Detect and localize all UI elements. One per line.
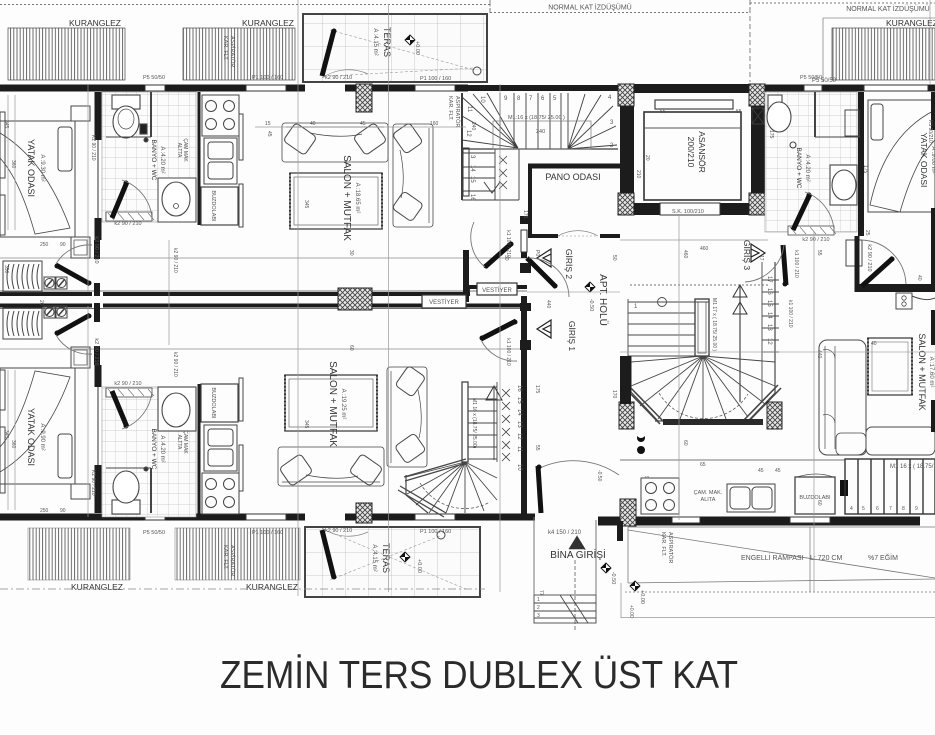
svg-text:A :9.90 m²: A :9.90 m² [39,423,45,450]
svg-text:k1 100 / 210: k1 100 / 210 [787,300,793,328]
svg-text:16: 16 [766,288,772,295]
svg-text:KAR. FLT.: KAR. FLT. [447,96,453,121]
svg-text:PANO ODASI: PANO ODASI [545,172,600,182]
svg-text:NORMAL KAT İZDÜŞÜMÜ: NORMAL KAT İZDÜŞÜMÜ [846,4,930,13]
svg-text:55: 55 [534,445,540,451]
svg-text:40: 40 [916,275,922,281]
svg-text:15: 15 [766,300,772,307]
svg-text:17: 17 [766,276,772,283]
svg-text:77: 77 [538,590,544,596]
svg-text:k1 100 / 210: k1 100 / 210 [505,230,511,258]
svg-text:240: 240 [536,129,545,135]
svg-text:K2 90 / 210: K2 90 / 210 [90,135,96,161]
svg-text:160: 160 [430,121,439,127]
svg-text:BUZDOLABI: BUZDOLABI [210,190,216,222]
svg-text:+0.00: +0.00 [416,559,422,573]
svg-text:360: 360 [10,440,16,449]
svg-text:ASANSÖR: ASANSÖR [697,131,707,173]
svg-text:15: 15 [469,176,475,183]
svg-text:+0.00: +0.00 [628,605,634,618]
svg-text:6: 6 [876,506,879,512]
svg-text:60: 60 [816,500,822,506]
svg-text:14: 14 [516,409,522,416]
svg-text:15: 15 [265,121,271,127]
svg-text:40: 40 [310,121,316,127]
svg-text:A :4.15 m²: A :4.15 m² [372,28,378,55]
svg-text:M1 16 x (18.75/ 25.00): M1 16 x (18.75/ 25.00) [471,398,477,449]
svg-text:170: 170 [611,390,617,399]
svg-text:TERAS: TERAS [381,543,391,573]
svg-text:P5 50/50: P5 50/50 [800,75,822,81]
svg-text:ALTTA: ALTTA [176,435,182,450]
svg-text:K2 90 / 210: K2 90 / 210 [90,470,96,496]
svg-text:K3 90/210: K3 90/210 [927,120,933,143]
svg-text:SALON + MUTFAK: SALON + MUTFAK [917,333,927,410]
svg-text:k2 90 / 210: k2 90 / 210 [866,244,872,271]
svg-text:30: 30 [348,250,354,256]
svg-text:M1 17 x ( 18.75/ 25.00 ): M1 17 x ( 18.75/ 25.00 ) [711,298,717,351]
svg-text:k2 90 / 210: k2 90 / 210 [93,338,99,365]
svg-text:k1 100 / 210: k1 100 / 210 [505,338,511,366]
svg-text:ASPİRATÖR: ASPİRATÖR [229,36,236,67]
svg-text:14: 14 [766,312,772,319]
svg-text:13: 13 [766,324,772,331]
svg-text:L: 720 CM: L: 720 CM [810,555,842,562]
svg-text:%7 EĞİM: %7 EĞİM [868,553,898,562]
svg-text:45: 45 [266,131,272,137]
svg-text:P1 100 / 160: P1 100 / 160 [420,76,451,82]
svg-text:30: 30 [503,255,509,261]
svg-text:BUZDOLABI: BUZDOLABI [210,387,216,419]
svg-text:M1:16 x (18.75/ 25.00 ): M1:16 x (18.75/ 25.00 ) [508,115,565,121]
svg-text:60: 60 [682,440,688,446]
svg-text:8: 8 [902,506,905,512]
svg-text:BANYO + WC: BANYO + WC [150,429,157,470]
svg-text:ALTTA: ALTTA [176,143,182,158]
svg-text:14: 14 [469,165,475,172]
svg-text:ALITA: ALITA [701,497,716,503]
svg-text:45: 45 [360,121,366,127]
svg-text:-0.50: -0.50 [610,572,616,585]
svg-text:k2 90 / 210: k2 90 / 210 [325,75,352,81]
svg-text:P1 100 / 160: P1 100 / 160 [252,530,283,536]
svg-text:360: 360 [10,160,16,169]
svg-text:KAR. FLT.: KAR. FLT. [222,36,228,61]
svg-text:10: 10 [479,96,485,103]
svg-text:11: 11 [466,106,472,113]
svg-text:M1 16 x ( 18.75/ 25.03 ): M1 16 x ( 18.75/ 25.03 ) [890,464,935,470]
svg-text:11: 11 [516,446,522,453]
svg-text:440: 440 [816,350,822,359]
svg-text:k2 90 / 210: k2 90 / 210 [172,352,178,377]
svg-text:350: 350 [3,265,9,274]
svg-text:12: 12 [516,433,522,440]
svg-text:SALON + MUTFAK: SALON + MUTFAK [341,155,352,241]
svg-text:A :4.20 m²: A :4.20 m² [159,146,165,173]
svg-text:12: 12 [465,130,471,137]
svg-text:A :4.20 m²: A :4.20 m² [804,154,810,181]
svg-text:A :4.15 m²: A :4.15 m² [371,544,377,571]
svg-text:BİNA GİRİŞİ: BİNA GİRİŞİ [550,548,606,561]
svg-text:345: 345 [303,420,309,429]
svg-text:45: 45 [775,468,781,474]
svg-text:ÇAM MAK: ÇAM MAK [182,138,188,162]
svg-text:440: 440 [545,300,551,309]
svg-text:3: 3 [537,613,540,619]
svg-text:VESTİYER: VESTİYER [482,287,512,294]
svg-text:55: 55 [736,109,742,115]
svg-text:2: 2 [537,605,540,611]
svg-text:90: 90 [60,508,66,514]
svg-text:APT. HOLÜ: APT. HOLÜ [597,274,609,326]
svg-text:10: 10 [516,464,522,471]
svg-text:-0.50: -0.50 [588,299,594,312]
svg-text:BANYO + WC: BANYO + WC [795,148,802,189]
svg-text:VESTİYER: VESTİYER [429,299,459,306]
svg-text:A :19.25 m²: A :19.25 m² [340,389,346,420]
svg-text:A :17.60 m²: A :17.60 m² [928,357,934,388]
svg-text:9: 9 [915,506,918,512]
svg-text:KURANGLEZ: KURANGLEZ [71,582,123,592]
svg-text:345: 345 [3,120,9,129]
svg-text:YATAK ODASI: YATAK ODASI [26,139,36,197]
svg-text:90: 90 [60,242,66,248]
svg-text:345: 345 [303,200,309,209]
svg-text:60: 60 [348,345,354,351]
svg-text:1: 1 [537,597,540,603]
svg-text:50: 50 [611,255,617,261]
svg-text:240: 240 [470,122,476,131]
svg-text:55: 55 [660,109,666,115]
svg-text:16: 16 [469,194,475,201]
svg-text:GİRİŞ 1: GİRİŞ 1 [567,321,577,352]
svg-text:A :18.65 m²: A :18.65 m² [354,183,360,214]
svg-text:GİRİŞ 3: GİRİŞ 3 [742,240,752,271]
svg-text:A :4.20 m²: A :4.20 m² [159,435,165,462]
svg-text:65: 65 [700,462,706,468]
svg-text:175: 175 [862,165,868,174]
svg-text:GİRİŞ 2: GİRİŞ 2 [564,249,574,280]
svg-text:17: 17 [758,255,764,261]
svg-text:A :9.30 m²: A :9.30 m² [39,154,45,181]
svg-text:ASPİRATÖR: ASPİRATÖR [454,96,461,127]
svg-text:BUZDOLABI: BUZDOLABI [799,495,831,501]
svg-text:S.K. 100/210: S.K. 100/210 [672,209,704,215]
svg-text:ÇAM. MAK.: ÇAM. MAK. [694,490,723,496]
svg-text:P1 100 / 160: P1 100 / 160 [420,529,451,535]
svg-text:k1 100 / 210: k1 100 / 210 [793,250,799,278]
svg-text:12: 12 [766,338,772,345]
svg-text:k2 90 / 210: k2 90 / 210 [114,381,141,387]
svg-text:KURANGLEZ: KURANGLEZ [886,18,935,28]
svg-text:k2 90 / 210: k2 90 / 210 [325,528,352,534]
svg-text:175: 175 [522,210,528,219]
svg-text:A :9.00 m²: A :9.00 m² [930,146,935,173]
svg-text:P0: P0 [534,250,540,256]
svg-text:200/210: 200/210 [686,137,696,168]
svg-text:k2 90 / 210: k2 90 / 210 [172,248,178,273]
svg-text:460: 460 [700,246,709,252]
svg-text:45: 45 [758,468,764,474]
svg-text:ASPİRATÖR: ASPİRATÖR [229,545,236,576]
svg-text:KAR. FLT.: KAR. FLT. [660,532,666,557]
svg-text:k2 90 / 210: k2 90 / 210 [93,236,99,263]
svg-text:460: 460 [682,250,688,259]
svg-text:20: 20 [644,155,650,161]
svg-text:YATAK ODASI: YATAK ODASI [26,408,36,466]
svg-text:+0.00: +0.00 [414,41,420,55]
svg-text:250: 250 [40,242,49,248]
svg-text:SALON + MUTFAK: SALON + MUTFAK [327,361,338,447]
svg-text:210: 210 [635,170,641,179]
svg-text:40: 40 [871,341,877,347]
svg-text:175: 175 [534,385,540,394]
svg-text:20: 20 [38,300,44,306]
svg-text:5: 5 [862,506,865,512]
svg-text:25: 25 [864,230,870,236]
svg-text:P5 50/50: P5 50/50 [143,530,165,536]
svg-text:345: 345 [3,430,9,439]
svg-text:ENGELLİ RAMPASI: ENGELLİ RAMPASI [741,553,804,562]
svg-text:175: 175 [768,130,774,139]
svg-text:9: 9 [643,476,649,479]
svg-text:BANYO + WC: BANYO + WC [150,140,157,181]
svg-text:55: 55 [816,250,822,256]
svg-text:250: 250 [40,508,49,514]
svg-text:KURANGLEZ: KURANGLEZ [246,582,298,592]
svg-text:KAR. FLT.: KAR. FLT. [222,545,228,570]
svg-text:13: 13 [516,421,522,428]
svg-text:4: 4 [850,506,853,512]
svg-text:TERAS: TERAS [382,27,392,57]
svg-text:15: 15 [516,397,522,404]
svg-text:KURANGLEZ: KURANGLEZ [242,18,294,28]
svg-text:ZEMİN TERS DUBLEX ÜST KAT: ZEMİN TERS DUBLEX ÜST KAT [220,654,738,697]
svg-text:+0.00: +0.00 [639,590,645,604]
svg-text:P5 50/50: P5 50/50 [143,75,165,81]
svg-text:NORMAL KAT İZDÜŞÜMÜ: NORMAL KAT İZDÜŞÜMÜ [548,3,632,12]
svg-text:7: 7 [889,506,892,512]
svg-text:ASPİRATÖR: ASPİRATÖR [667,532,674,563]
svg-text:P1 100 / 160: P1 100 / 160 [252,75,283,81]
svg-text:-0.50: -0.50 [596,470,602,482]
svg-text:ÇAM MAK: ÇAM MAK [182,430,188,454]
svg-text:16: 16 [516,385,522,392]
svg-text:k4 150 / 210: k4 150 / 210 [548,530,582,536]
svg-text:KURANGLEZ: KURANGLEZ [69,18,121,28]
